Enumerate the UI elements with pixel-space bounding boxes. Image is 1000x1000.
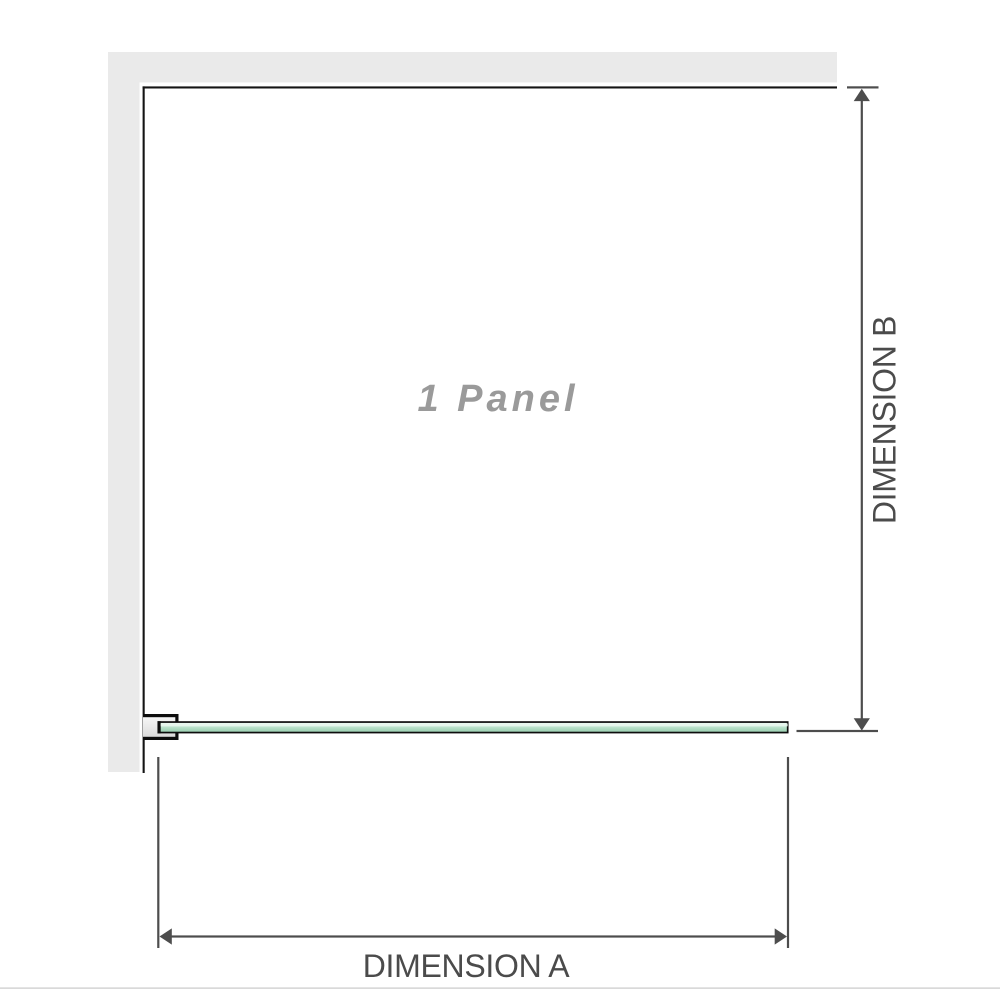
svg-text:DIMENSION A: DIMENSION A [363, 948, 570, 984]
svg-text:1 Panel: 1 Panel [417, 378, 578, 420]
svg-text:DIMENSION B: DIMENSION B [867, 316, 903, 524]
